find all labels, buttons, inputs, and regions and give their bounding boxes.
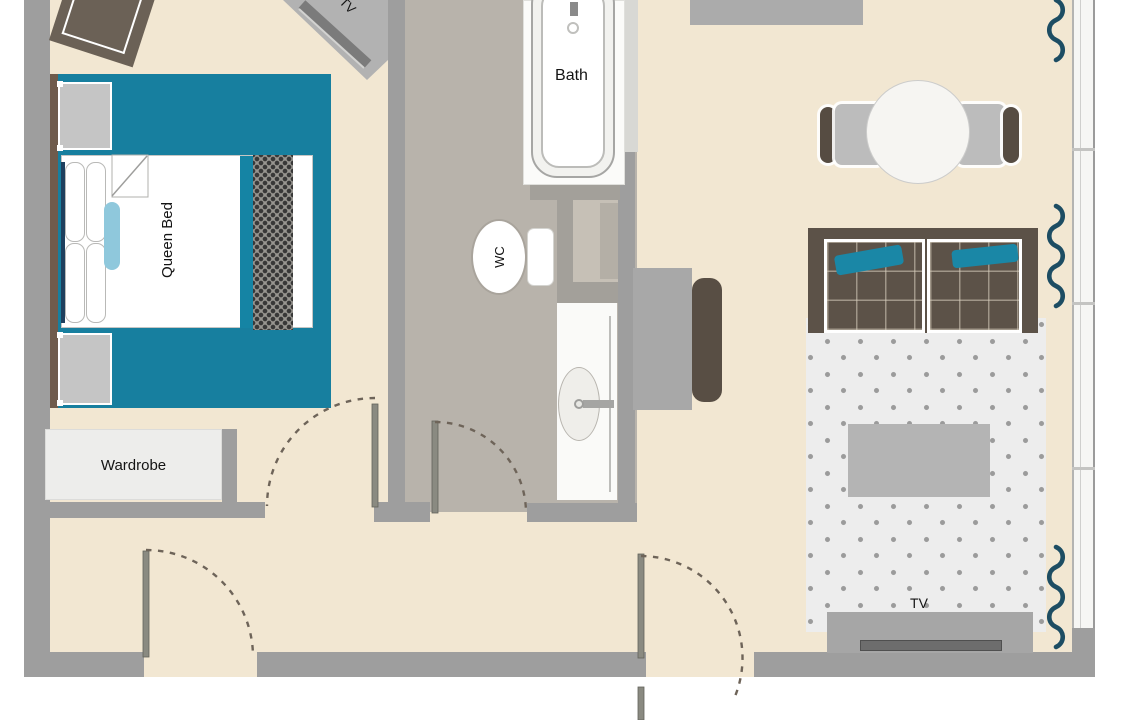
wall-bottom-a xyxy=(24,652,144,677)
wall-niche-top xyxy=(530,183,620,200)
accent-pillow xyxy=(104,202,120,270)
wall-bath-west xyxy=(388,0,405,512)
bed-runner xyxy=(240,156,253,328)
bed-blanket xyxy=(253,155,293,330)
window-band xyxy=(1072,0,1095,628)
pillow xyxy=(65,243,85,323)
sofa xyxy=(808,228,1038,333)
wall-glass-strip xyxy=(624,0,638,152)
armchair-seat-line xyxy=(62,0,149,54)
sideboard xyxy=(690,0,863,25)
pillow xyxy=(86,243,106,323)
nightstand-bottom xyxy=(58,333,112,405)
floor-plan: Queen Bed Wardrobe Bath WC TV TV xyxy=(0,0,1128,720)
wardrobe-label: Wardrobe xyxy=(45,455,222,475)
pillow xyxy=(86,162,106,242)
wall-bottom-c xyxy=(754,652,1095,677)
sofa-cushion xyxy=(824,239,925,333)
door-leaf-entry-outer xyxy=(638,687,644,720)
sofa-pillow xyxy=(834,244,904,276)
window-mullion-1 xyxy=(1072,148,1095,151)
desk xyxy=(633,268,692,410)
nightstand-top xyxy=(58,82,112,150)
dining-table xyxy=(866,80,970,184)
pillow xyxy=(65,162,85,242)
headboard xyxy=(50,74,58,408)
bath-label: Bath xyxy=(523,66,620,86)
sink-knob xyxy=(574,399,584,409)
wc-label: WC xyxy=(479,235,519,279)
desk-chair xyxy=(692,278,722,402)
bath-drain xyxy=(567,22,579,34)
wall-left xyxy=(24,0,50,677)
bath-tap xyxy=(570,2,578,16)
window-mullion-2 xyxy=(1072,302,1095,305)
niche-shelf-inset xyxy=(600,203,618,279)
wall-corner-se xyxy=(1072,628,1095,677)
wall-wardrobe-stub xyxy=(222,429,237,502)
sofa-cushion xyxy=(927,239,1022,333)
living-tv-label: TV xyxy=(889,594,949,612)
dining-chair-left-back xyxy=(820,107,836,163)
queen-bed-label: Queen Bed xyxy=(142,180,192,300)
wall-bedroom-south xyxy=(45,502,265,518)
sink-faucet xyxy=(583,400,614,408)
coffee-table xyxy=(848,424,990,497)
tv-screen xyxy=(860,640,1002,651)
window-mullion-3 xyxy=(1072,467,1095,470)
wall-niche-bottom xyxy=(557,282,618,303)
sofa-pillow xyxy=(951,244,1019,269)
dining-chair-right-back xyxy=(1003,107,1019,163)
wall-bottom-b xyxy=(257,652,646,677)
toilet-tank xyxy=(527,228,554,286)
window-glass-line xyxy=(1080,0,1081,628)
